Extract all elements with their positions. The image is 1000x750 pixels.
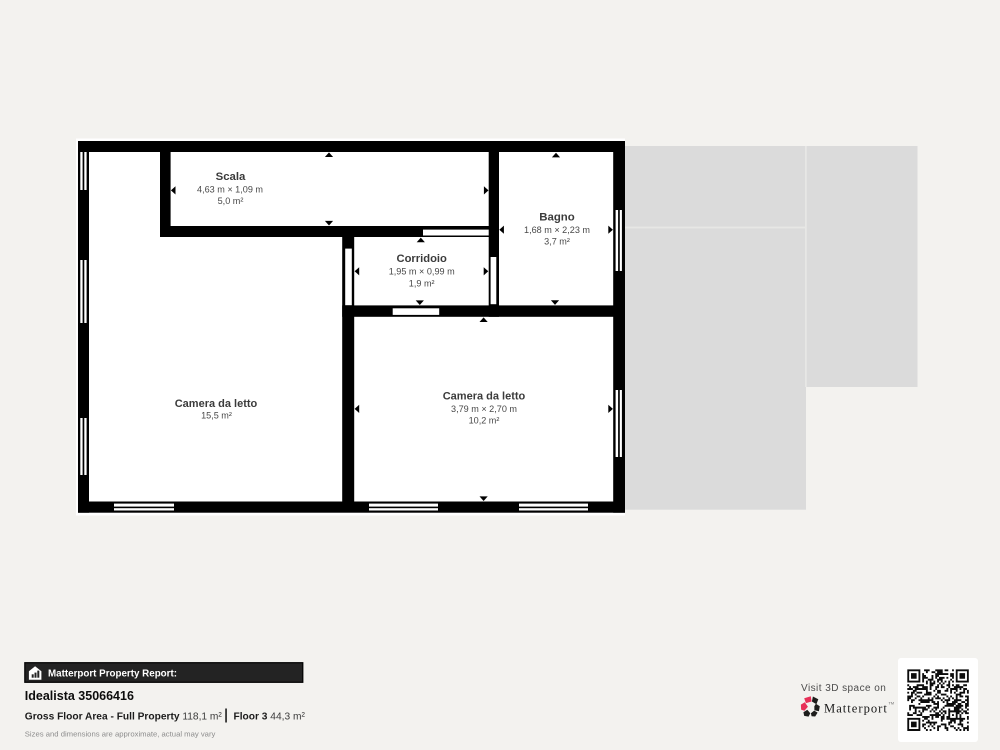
svg-text:Gross Floor Area - Full Proper: Gross Floor Area - Full Property 118,1 m… — [25, 712, 223, 723]
svg-text:Idealista 35066416: Idealista 35066416 — [25, 689, 134, 703]
svg-text:1,9 m²: 1,9 m² — [409, 278, 435, 288]
svg-text:Floor 3 44,3 m²: Floor 3 44,3 m² — [234, 712, 306, 723]
svg-text:Corridoio: Corridoio — [397, 253, 448, 265]
svg-text:4,63 m × 1,09 m: 4,63 m × 1,09 m — [197, 184, 263, 194]
svg-text:TM: TM — [889, 702, 894, 706]
svg-text:Matterport Property Report:: Matterport Property Report: — [48, 669, 177, 680]
svg-text:10,2 m²: 10,2 m² — [469, 416, 500, 426]
svg-text:Camera da letto: Camera da letto — [443, 390, 526, 402]
svg-text:Matterport: Matterport — [824, 702, 888, 716]
svg-text:5,0 m²: 5,0 m² — [218, 196, 244, 206]
svg-text:Bagno: Bagno — [539, 212, 574, 224]
svg-text:1,68 m × 2,23 m: 1,68 m × 2,23 m — [524, 225, 590, 235]
svg-text:Camera da letto: Camera da letto — [175, 398, 258, 410]
svg-text:3,7 m²: 3,7 m² — [544, 237, 570, 247]
svg-text:1,95 m × 0,99 m: 1,95 m × 0,99 m — [389, 267, 455, 277]
svg-text:15,5 m²: 15,5 m² — [201, 411, 232, 421]
svg-text:Scala: Scala — [216, 171, 246, 183]
svg-text:Sizes and dimensions are appro: Sizes and dimensions are approximate, ac… — [25, 729, 216, 738]
svg-text:3,79 m × 2,70 m: 3,79 m × 2,70 m — [451, 404, 517, 414]
svg-text:Visit 3D space on: Visit 3D space on — [801, 683, 886, 694]
